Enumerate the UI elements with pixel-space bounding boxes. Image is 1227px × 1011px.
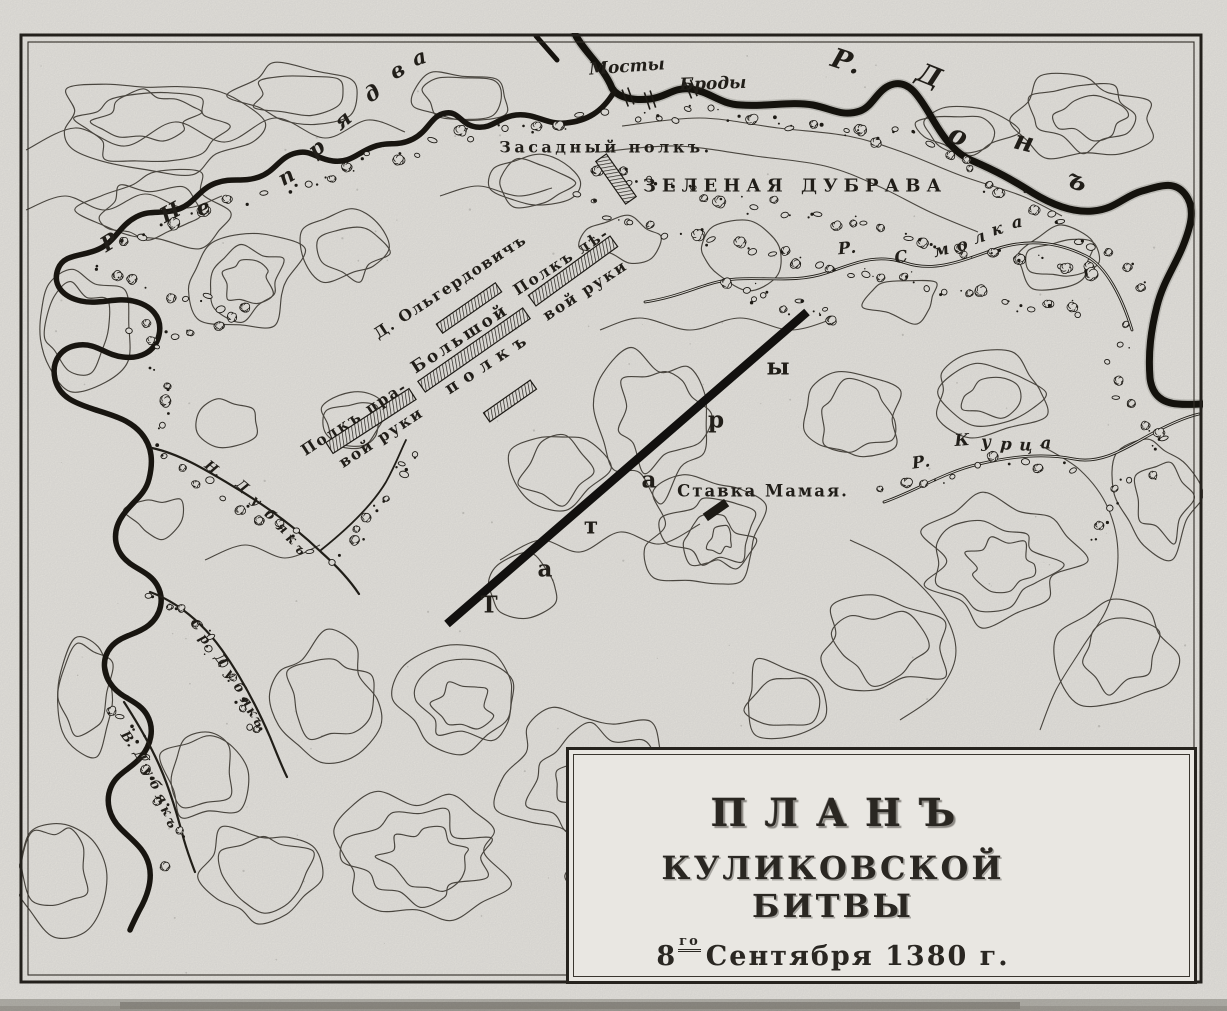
map-page: Мосты Броды Засадный полкъ. ЗЕЛЕНАЯ ДУБР… [0, 0, 1227, 1011]
date-day: 8 [656, 941, 677, 972]
map-title: ПЛАНЪ [583, 790, 1083, 835]
title-cartouche: ПЛАНЪ КУЛИКОВСКОЙ БИТВЫ 8гоСентября 1380… [566, 747, 1197, 984]
date-ordinal: го [678, 934, 701, 952]
map-subtitle: КУЛИКОВСКОЙ БИТВЫ [583, 849, 1083, 925]
map-date: 8гоСентября 1380 г. [583, 941, 1083, 972]
date-rest: Сентября 1380 г. [706, 941, 1010, 972]
title-block: ПЛАНЪ КУЛИКОВСКОЙ БИТВЫ 8гоСентября 1380… [583, 790, 1083, 972]
